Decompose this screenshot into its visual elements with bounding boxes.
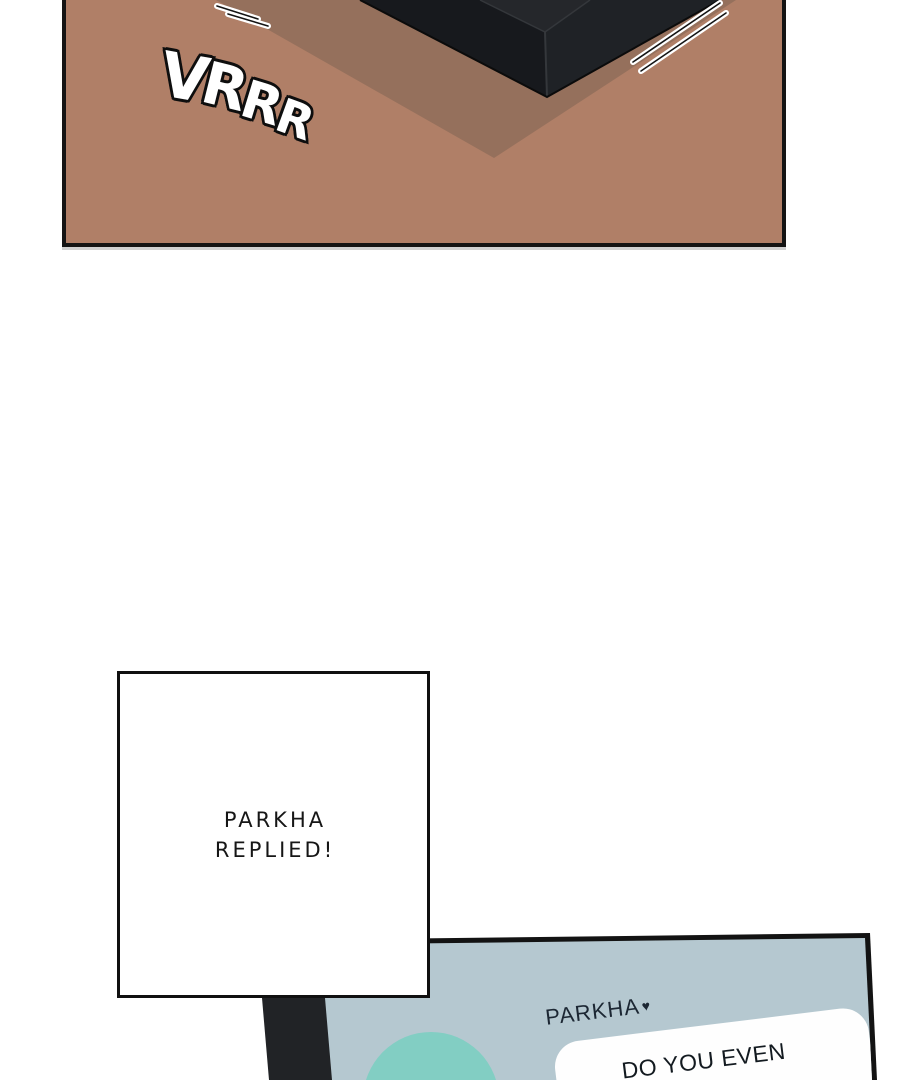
heart-icon: ♥ (641, 997, 652, 1014)
caption-line-2: REPLIED! (215, 838, 335, 862)
avatar (363, 1032, 499, 1080)
caption-line-1: PARKHA (224, 808, 326, 832)
message-text: DO YOU EVEN (620, 1038, 787, 1080)
comic-page: VRRR PARKHA♥ DO YOU EVEN PARKHA REPLIED! (0, 0, 920, 1080)
phone-corner-illustration (66, 0, 782, 243)
caption-text: PARKHA REPLIED! (212, 805, 335, 865)
contact-name: PARKHA♥ (544, 992, 653, 1031)
contact-name-text: PARKHA (544, 993, 641, 1029)
caption-box: PARKHA REPLIED! (117, 671, 430, 998)
